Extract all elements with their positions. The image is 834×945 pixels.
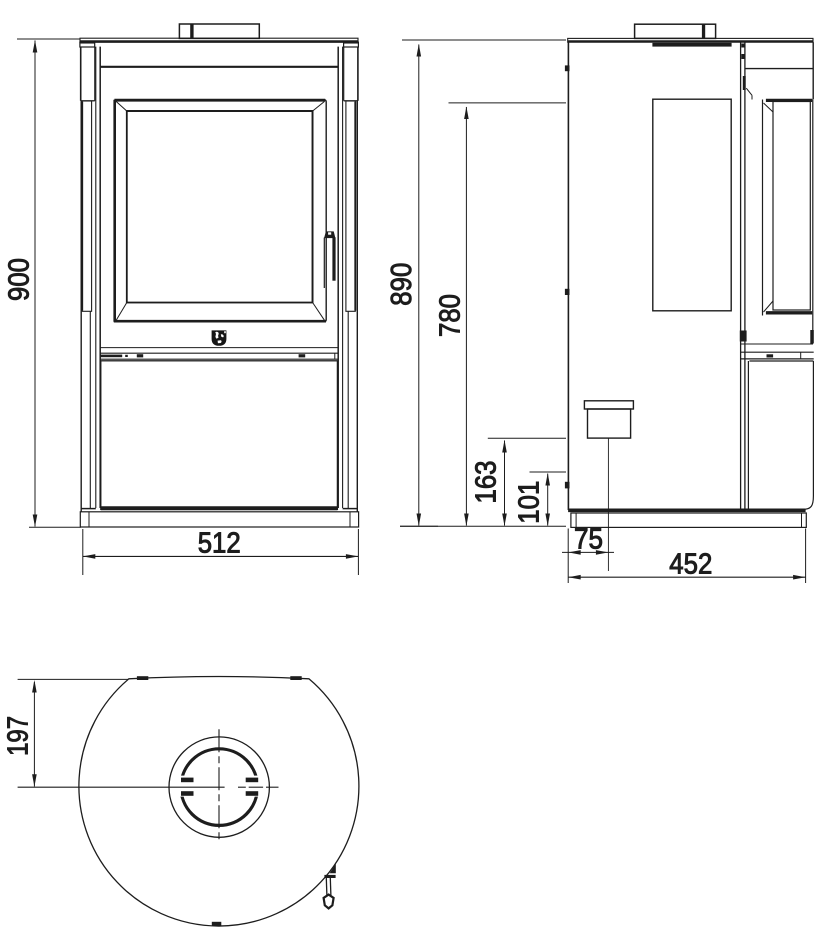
svg-text:197: 197 [2,716,34,756]
svg-text:75: 75 [574,524,603,556]
svg-text:890: 890 [386,263,418,306]
svg-text:780: 780 [434,294,466,337]
svg-text:163: 163 [471,461,503,504]
svg-text:452: 452 [669,549,712,581]
svg-text:900: 900 [4,258,36,301]
svg-text:512: 512 [198,528,241,560]
svg-text:101: 101 [514,481,546,524]
